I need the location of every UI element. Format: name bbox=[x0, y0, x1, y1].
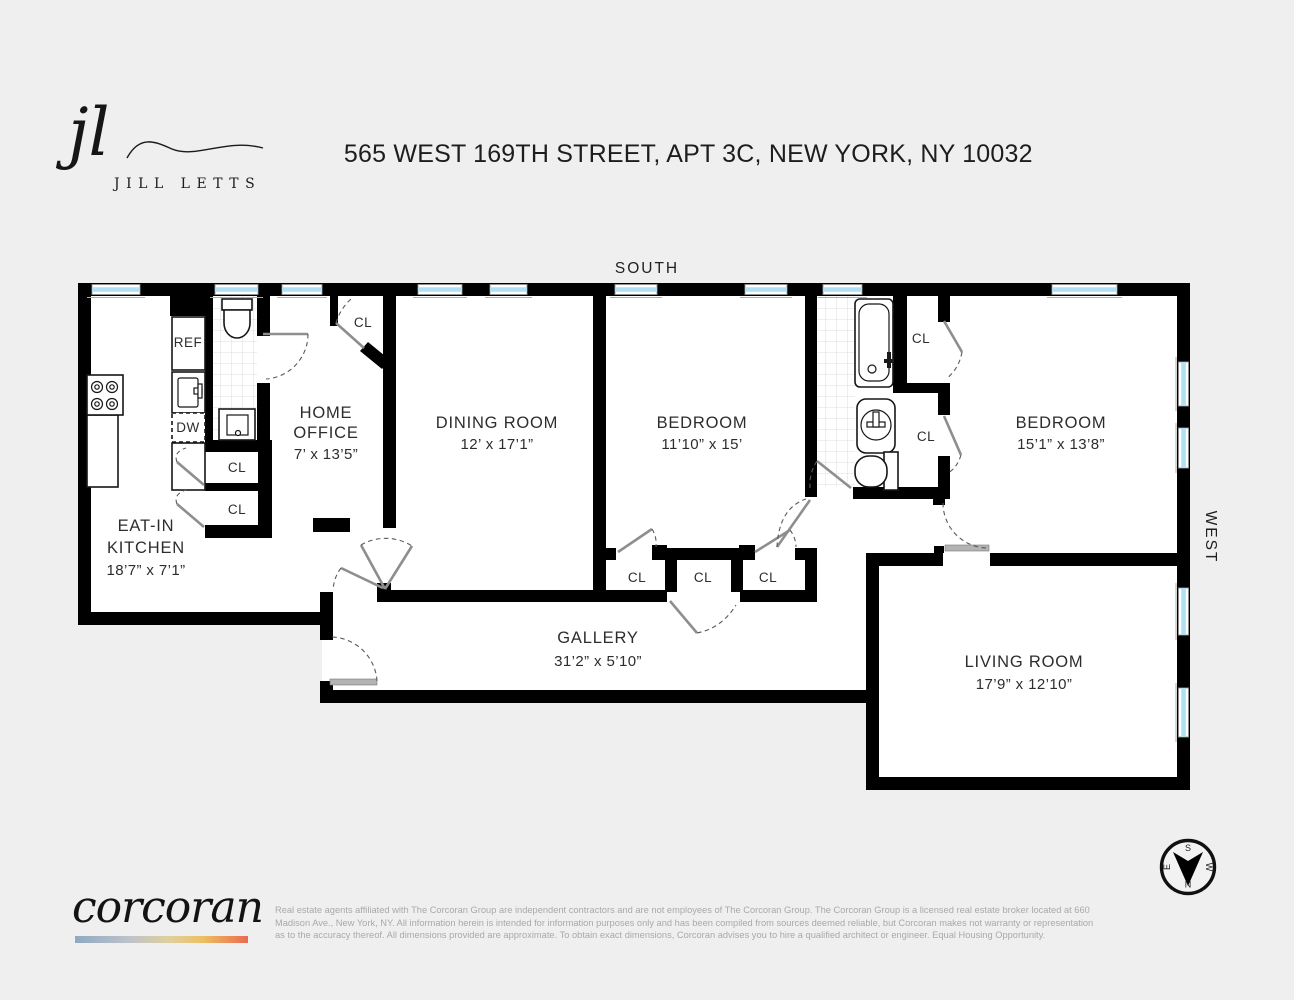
svg-text:OFFICE: OFFICE bbox=[293, 424, 358, 442]
svg-text:7’ x 13’5”: 7’ x 13’5” bbox=[294, 446, 358, 463]
label-bedroom-2: BEDROOM bbox=[1016, 414, 1107, 432]
svg-text:18’7” x 7’1”: 18’7” x 7’1” bbox=[106, 562, 185, 579]
label-home-office: HOME bbox=[300, 404, 353, 422]
label-ref: REF bbox=[174, 335, 203, 350]
orientation-west: WEST bbox=[1202, 511, 1219, 564]
orientation-south: SOUTH bbox=[615, 260, 679, 277]
agent-logo: jl bbox=[68, 100, 110, 166]
label-closet: CL bbox=[694, 570, 712, 585]
disclaimer-line: Madison Ave., New York, NY. All informat… bbox=[275, 917, 1093, 930]
label-kitchen: EAT-IN bbox=[118, 517, 175, 535]
label-closet: CL bbox=[628, 570, 646, 585]
label-closet: CL bbox=[228, 502, 246, 517]
svg-text:17’9” x 12’10”: 17’9” x 12’10” bbox=[976, 676, 1073, 693]
label-living-room: LIVING ROOM bbox=[965, 653, 1084, 671]
compass-icon: S N W E bbox=[1162, 841, 1215, 894]
label-closet: CL bbox=[228, 460, 246, 475]
label-closet: CL bbox=[759, 570, 777, 585]
disclaimer-line: Real estate agents affiliated with The C… bbox=[275, 904, 1093, 917]
svg-text:12’ x 17’1”: 12’ x 17’1” bbox=[460, 436, 533, 453]
brokerage-logo: corcoran bbox=[72, 886, 263, 930]
label-gallery: GALLERY bbox=[557, 629, 638, 647]
svg-text:11’10” x 15’: 11’10” x 15’ bbox=[661, 436, 742, 453]
page-title: 565 WEST 169TH STREET, APT 3C, NEW YORK,… bbox=[344, 140, 1033, 169]
toilet-icon bbox=[222, 299, 252, 310]
svg-text:31’2” x 5’10”: 31’2” x 5’10” bbox=[554, 653, 642, 670]
svg-text:KITCHEN: KITCHEN bbox=[107, 539, 185, 557]
disclaimer: Real estate agents affiliated with The C… bbox=[275, 904, 1093, 942]
label-dining-room: DINING ROOM bbox=[436, 414, 558, 432]
label-closet: CL bbox=[354, 315, 372, 330]
svg-text:S: S bbox=[1185, 843, 1191, 853]
agent-name: JILL LETTS bbox=[114, 176, 261, 192]
svg-text:E: E bbox=[1162, 864, 1172, 870]
disclaimer-line: as to the accuracy thereof. All dimensio… bbox=[275, 929, 1093, 942]
svg-text:W: W bbox=[1204, 863, 1214, 872]
label-closet: CL bbox=[912, 331, 930, 346]
brokerage-gradient-bar bbox=[75, 936, 248, 943]
svg-text:15’1” x 13’8”: 15’1” x 13’8” bbox=[1017, 436, 1105, 453]
svg-text:N: N bbox=[1185, 879, 1192, 889]
label-closet: CL bbox=[917, 429, 935, 444]
floor-plan-page: SOUTH WEST EAT-IN KITCHEN 18’7” x 7’1” H… bbox=[0, 0, 1294, 1000]
label-bedroom-1: BEDROOM bbox=[657, 414, 748, 432]
label-dw: DW bbox=[176, 420, 200, 435]
logo-flourish bbox=[127, 142, 263, 158]
counter bbox=[87, 415, 118, 487]
stove-icon bbox=[87, 375, 123, 415]
